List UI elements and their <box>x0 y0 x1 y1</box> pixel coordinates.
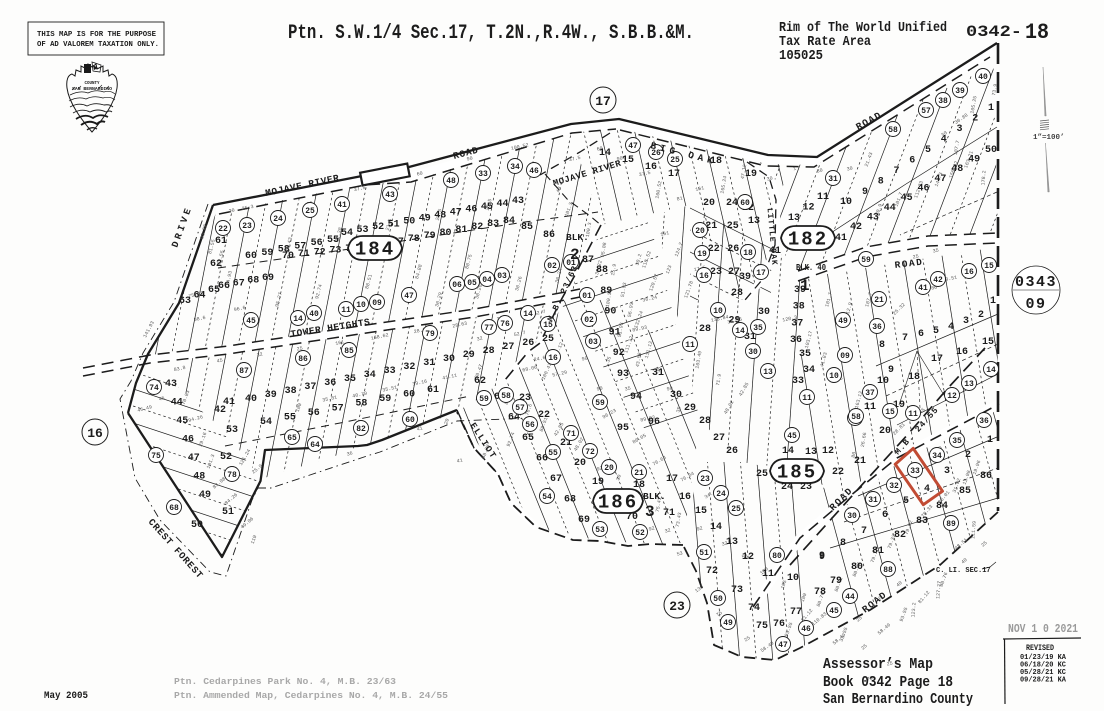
svg-text:35: 35 <box>753 324 763 333</box>
svg-text:23: 23 <box>669 599 685 614</box>
svg-text:20: 20 <box>604 464 614 473</box>
svg-text:15: 15 <box>982 337 994 348</box>
svg-text:53: 53 <box>356 225 368 236</box>
svg-text:3: 3 <box>956 124 962 135</box>
svg-text:12: 12 <box>947 392 957 401</box>
svg-text:92: 92 <box>613 348 625 359</box>
svg-text:8: 8 <box>878 177 884 188</box>
svg-text:2: 2 <box>978 310 984 321</box>
svg-text:50: 50 <box>403 216 415 227</box>
svg-text:09: 09 <box>840 352 850 361</box>
svg-text:45: 45 <box>246 317 256 326</box>
svg-text:09: 09 <box>372 299 382 308</box>
svg-text:May 2005: May 2005 <box>44 691 88 702</box>
svg-text:40: 40 <box>978 73 988 82</box>
svg-text:42: 42 <box>214 405 226 416</box>
svg-text:25: 25 <box>727 221 739 232</box>
svg-text:65: 65 <box>287 434 297 443</box>
svg-text:11: 11 <box>864 402 876 413</box>
svg-text:9: 9 <box>888 365 894 376</box>
svg-text:58: 58 <box>501 392 511 401</box>
svg-text:54: 54 <box>260 417 272 428</box>
svg-text:C. LI. SEC.17: C. LI. SEC.17 <box>936 567 991 575</box>
svg-text:34: 34 <box>364 370 376 381</box>
svg-text:COUNTY: COUNTY <box>84 82 100 86</box>
svg-text:76: 76 <box>773 619 785 630</box>
svg-text:51: 51 <box>222 507 234 518</box>
svg-text:37: 37 <box>791 318 803 329</box>
svg-text:49: 49 <box>838 317 848 326</box>
svg-text:3: 3 <box>645 503 655 521</box>
svg-text:83: 83 <box>916 516 928 527</box>
svg-text:22: 22 <box>218 225 228 234</box>
svg-text:46: 46 <box>182 435 194 446</box>
svg-text:32: 32 <box>889 482 899 491</box>
svg-text:42: 42 <box>850 222 862 233</box>
svg-text:1: 1 <box>990 296 996 307</box>
svg-text:34: 34 <box>932 452 942 461</box>
svg-text:87: 87 <box>239 367 249 376</box>
svg-text:1: 1 <box>988 103 994 114</box>
svg-text:72: 72 <box>706 566 718 577</box>
svg-text:81: 81 <box>455 225 467 236</box>
svg-text:11: 11 <box>817 192 829 203</box>
svg-text:Ptn. S.W.1/4 Sec.17, T.2N.,R.4: Ptn. S.W.1/4 Sec.17, T.2N.,R.4W., S.B.B.… <box>288 22 694 45</box>
svg-text:7: 7 <box>902 333 908 344</box>
svg-text:24: 24 <box>726 198 738 209</box>
svg-text:11: 11 <box>762 569 774 580</box>
svg-text:21: 21 <box>634 469 644 478</box>
svg-text:57: 57 <box>921 107 931 116</box>
svg-text:Ptn. Cedarpines Park No. 4, M.: Ptn. Cedarpines Park No. 4, M.B. 23/63 <box>174 677 396 687</box>
svg-text:55: 55 <box>284 412 296 423</box>
svg-text:35: 35 <box>952 437 962 446</box>
svg-text:Tax Rate Area: Tax Rate Area <box>779 35 871 50</box>
svg-text:45: 45 <box>176 416 188 427</box>
svg-text:18: 18 <box>743 249 753 258</box>
svg-text:9: 9 <box>819 552 825 563</box>
svg-text:38: 38 <box>285 386 297 397</box>
svg-text:3: 3 <box>944 466 950 477</box>
svg-text:52: 52 <box>220 452 232 463</box>
svg-text:37: 37 <box>865 389 875 398</box>
svg-text:30: 30 <box>748 348 758 357</box>
svg-text:28: 28 <box>699 324 711 335</box>
svg-text:02: 02 <box>584 316 594 325</box>
svg-text:60: 60 <box>740 199 750 208</box>
svg-text:19: 19 <box>592 477 604 488</box>
svg-text:81: 81 <box>872 546 884 557</box>
svg-text:20: 20 <box>695 227 705 236</box>
svg-text:30: 30 <box>847 512 857 521</box>
svg-text:78: 78 <box>227 471 237 480</box>
svg-text:27: 27 <box>713 433 725 444</box>
svg-text:44: 44 <box>496 199 508 210</box>
svg-text:17: 17 <box>595 94 611 109</box>
svg-text:03: 03 <box>497 272 507 281</box>
svg-text:46: 46 <box>917 184 929 195</box>
svg-text:33: 33 <box>478 170 488 179</box>
svg-text:77: 77 <box>790 607 802 618</box>
svg-text:69: 69 <box>262 273 274 284</box>
svg-text:52: 52 <box>635 529 645 538</box>
svg-text:85: 85 <box>959 486 971 497</box>
svg-text:5: 5 <box>925 145 931 156</box>
svg-text:182: 182 <box>788 229 828 251</box>
svg-text:04: 04 <box>482 276 492 285</box>
svg-text:14: 14 <box>710 522 722 533</box>
svg-text:70: 70 <box>282 251 294 262</box>
svg-text:80: 80 <box>851 562 863 573</box>
svg-text:44: 44 <box>171 398 183 409</box>
svg-text:61: 61 <box>427 385 439 396</box>
svg-text:2: 2 <box>965 450 971 461</box>
svg-text:84: 84 <box>936 501 948 512</box>
svg-text:87: 87 <box>582 255 594 266</box>
svg-text:26: 26 <box>522 338 534 349</box>
svg-text:14: 14 <box>735 327 745 336</box>
svg-text:31: 31 <box>423 358 435 369</box>
svg-text:02: 02 <box>547 262 557 271</box>
svg-text:49: 49 <box>419 214 431 225</box>
svg-text:4: 4 <box>948 322 954 333</box>
svg-text:1”=100’: 1”=100’ <box>1033 134 1065 142</box>
svg-text:8: 8 <box>840 538 846 549</box>
svg-text:14: 14 <box>782 446 794 457</box>
svg-text:79: 79 <box>830 576 842 587</box>
svg-text:13: 13 <box>763 368 773 377</box>
svg-text:95: 95 <box>617 423 629 434</box>
svg-text:2: 2 <box>570 246 580 264</box>
svg-text:4: 4 <box>924 484 930 495</box>
svg-text:6: 6 <box>882 510 888 521</box>
svg-text:56: 56 <box>525 421 535 430</box>
svg-text:57: 57 <box>332 403 344 414</box>
svg-text:71: 71 <box>566 430 576 439</box>
svg-text:06: 06 <box>452 281 462 290</box>
svg-text:26: 26 <box>726 446 738 457</box>
svg-text:80: 80 <box>772 552 782 561</box>
svg-text:36: 36 <box>872 323 882 332</box>
svg-text:91: 91 <box>609 327 621 338</box>
svg-text:15: 15 <box>885 408 895 417</box>
svg-text:16: 16 <box>964 268 974 277</box>
svg-text:68: 68 <box>564 495 576 506</box>
svg-text:THIS MAP IS FOR THE PURPOSE: THIS MAP IS FOR THE PURPOSE <box>37 31 156 39</box>
svg-text:46: 46 <box>801 625 811 634</box>
svg-text:96: 96 <box>648 417 660 428</box>
svg-text:90: 90 <box>581 355 588 362</box>
svg-text:11: 11 <box>908 410 918 419</box>
svg-text:84: 84 <box>503 216 515 227</box>
svg-text:11: 11 <box>341 306 351 315</box>
svg-text:68: 68 <box>169 504 179 513</box>
svg-text:10: 10 <box>713 307 723 316</box>
svg-text:14: 14 <box>599 148 611 159</box>
svg-text:10: 10 <box>829 372 839 381</box>
svg-text:76: 76 <box>500 320 510 329</box>
svg-text:35: 35 <box>799 349 811 360</box>
svg-text:37: 37 <box>304 382 316 393</box>
svg-text:8: 8 <box>879 340 885 351</box>
svg-text:77: 77 <box>484 324 494 333</box>
svg-text:41: 41 <box>835 233 847 244</box>
svg-text:20: 20 <box>228 207 235 214</box>
svg-text:53: 53 <box>226 425 238 436</box>
svg-text:23: 23 <box>242 222 252 231</box>
svg-text:60: 60 <box>403 390 415 401</box>
svg-text:22: 22 <box>538 410 550 421</box>
svg-text:16: 16 <box>699 272 709 281</box>
svg-text:18: 18 <box>908 372 920 383</box>
svg-text:48: 48 <box>951 164 963 175</box>
svg-text:59: 59 <box>861 256 871 265</box>
svg-text:89: 89 <box>600 286 612 297</box>
svg-text:74: 74 <box>149 384 159 393</box>
svg-text:22: 22 <box>832 467 844 478</box>
svg-text:49: 49 <box>968 155 980 166</box>
svg-text:20: 20 <box>703 198 715 209</box>
svg-text:9: 9 <box>862 187 868 198</box>
svg-text:39: 39 <box>739 272 751 283</box>
svg-text:12: 12 <box>742 552 754 563</box>
svg-text:14: 14 <box>293 315 303 324</box>
svg-text:41: 41 <box>456 457 463 464</box>
svg-text:13: 13 <box>964 380 974 389</box>
svg-text:26: 26 <box>727 244 739 255</box>
svg-text:32: 32 <box>403 362 415 373</box>
svg-text:29: 29 <box>684 403 696 414</box>
svg-text:81: 81 <box>676 195 683 202</box>
svg-text:86: 86 <box>543 230 555 241</box>
svg-text:47: 47 <box>628 142 638 151</box>
svg-text:62: 62 <box>210 259 222 270</box>
svg-text:25: 25 <box>305 207 315 216</box>
svg-text:50: 50 <box>713 595 723 604</box>
svg-text:47: 47 <box>188 453 200 464</box>
svg-text:45: 45 <box>829 607 839 616</box>
svg-text:88: 88 <box>883 566 893 575</box>
svg-text:71: 71 <box>298 249 310 260</box>
svg-text:13: 13 <box>726 537 738 548</box>
svg-text:56: 56 <box>308 408 320 419</box>
svg-text:80: 80 <box>439 228 451 239</box>
svg-text:34: 34 <box>510 163 520 172</box>
svg-text:94: 94 <box>630 392 642 403</box>
svg-text:6: 6 <box>909 156 915 167</box>
svg-text:71: 71 <box>663 508 675 519</box>
svg-text:51: 51 <box>699 549 709 558</box>
svg-text:20: 20 <box>574 458 586 469</box>
svg-text:47: 47 <box>450 208 462 219</box>
svg-text:15: 15 <box>622 155 634 166</box>
svg-text:10: 10 <box>877 376 889 387</box>
svg-text:Book 0342 Page 18: Book 0342 Page 18 <box>823 674 953 691</box>
svg-text:10: 10 <box>356 301 366 310</box>
svg-text:25: 25 <box>731 505 741 514</box>
svg-text:68: 68 <box>247 276 259 287</box>
svg-text:01: 01 <box>582 292 592 301</box>
svg-text:33: 33 <box>384 366 396 377</box>
svg-text:39: 39 <box>955 87 965 96</box>
svg-text:40: 40 <box>309 310 319 319</box>
svg-text:88: 88 <box>596 265 608 276</box>
svg-text:5: 5 <box>903 496 909 507</box>
svg-text:184: 184 <box>355 239 395 261</box>
svg-text:29: 29 <box>463 350 475 361</box>
svg-text:62: 62 <box>474 376 486 387</box>
svg-text:28: 28 <box>483 346 495 357</box>
svg-text:63: 63 <box>179 296 191 307</box>
svg-text:33: 33 <box>910 467 920 476</box>
svg-text:7: 7 <box>893 166 899 177</box>
svg-text:52: 52 <box>372 222 384 233</box>
svg-text:BLK.: BLK. <box>566 232 589 243</box>
svg-text:12: 12 <box>802 203 814 214</box>
svg-text:3: 3 <box>963 316 969 327</box>
svg-text:78: 78 <box>408 234 420 245</box>
svg-text:46: 46 <box>529 167 539 176</box>
svg-text:48: 48 <box>446 177 456 186</box>
svg-text:59: 59 <box>479 395 489 404</box>
svg-text:54: 54 <box>542 493 552 502</box>
svg-text:79: 79 <box>424 231 436 242</box>
svg-text:28: 28 <box>731 288 743 299</box>
svg-text:32: 32 <box>256 351 263 358</box>
svg-text:60: 60 <box>245 251 257 262</box>
svg-text:17: 17 <box>756 269 766 278</box>
svg-text:17: 17 <box>668 169 680 180</box>
svg-text:75: 75 <box>151 452 161 461</box>
svg-text:13: 13 <box>805 447 817 458</box>
svg-text:28: 28 <box>699 416 711 427</box>
svg-text:39: 39 <box>265 390 277 401</box>
svg-text:185: 185 <box>777 462 817 484</box>
svg-text:47: 47 <box>778 641 788 650</box>
svg-text:59: 59 <box>595 399 605 408</box>
svg-text:30: 30 <box>846 165 853 172</box>
svg-text:30: 30 <box>670 390 682 401</box>
svg-text:31: 31 <box>652 368 664 379</box>
svg-text:2: 2 <box>972 114 978 125</box>
svg-text:48: 48 <box>434 211 446 222</box>
svg-text:30: 30 <box>758 307 770 318</box>
svg-text:82: 82 <box>894 530 906 541</box>
svg-text:05: 05 <box>467 279 477 288</box>
svg-text:64: 64 <box>193 291 205 302</box>
svg-text:38: 38 <box>938 97 948 106</box>
svg-text:16: 16 <box>87 426 103 441</box>
svg-text:47: 47 <box>934 174 946 185</box>
svg-text:16: 16 <box>679 492 691 503</box>
svg-text:64: 64 <box>310 441 320 450</box>
svg-text:24: 24 <box>716 490 726 499</box>
svg-text:61: 61 <box>215 236 227 247</box>
svg-text:43: 43 <box>165 379 177 390</box>
svg-text:19: 19 <box>697 250 707 259</box>
svg-text:186: 186 <box>598 492 638 514</box>
svg-text:50: 50 <box>985 145 997 156</box>
svg-text:82: 82 <box>356 425 366 434</box>
svg-text:85: 85 <box>521 222 533 233</box>
svg-text:25: 25 <box>542 334 554 345</box>
svg-text:45: 45 <box>216 357 223 364</box>
svg-text:47: 47 <box>404 292 414 301</box>
svg-text:16: 16 <box>548 354 558 363</box>
svg-text:50: 50 <box>191 520 203 531</box>
svg-text:36: 36 <box>790 335 802 346</box>
svg-text:21: 21 <box>854 456 866 467</box>
svg-text:44: 44 <box>884 203 896 214</box>
svg-text:85: 85 <box>344 347 354 356</box>
svg-text:27: 27 <box>502 342 514 353</box>
svg-text:16: 16 <box>956 347 968 358</box>
svg-text:30: 30 <box>766 175 773 182</box>
svg-text:90: 90 <box>604 307 616 318</box>
svg-text:0342-: 0342- <box>966 23 1022 41</box>
svg-text:55: 55 <box>548 449 558 458</box>
svg-text:51: 51 <box>388 219 400 230</box>
svg-text:42: 42 <box>933 276 943 285</box>
svg-text:33: 33 <box>792 376 804 387</box>
svg-text:67: 67 <box>233 278 245 289</box>
svg-text:REVISED: REVISED <box>1026 644 1054 653</box>
svg-text:10: 10 <box>787 573 799 584</box>
svg-text:5: 5 <box>933 326 939 337</box>
svg-text:34: 34 <box>803 365 815 376</box>
svg-text:12: 12 <box>822 446 834 457</box>
svg-text:15: 15 <box>695 506 707 517</box>
svg-text:13: 13 <box>748 216 760 227</box>
svg-text:48: 48 <box>193 472 205 483</box>
svg-text:43: 43 <box>512 196 524 207</box>
svg-text:43: 43 <box>867 212 879 223</box>
svg-text:11: 11 <box>685 341 695 350</box>
svg-text:BLK.: BLK. <box>643 491 666 502</box>
svg-text:14: 14 <box>986 366 996 375</box>
svg-text:73: 73 <box>731 585 743 596</box>
svg-text:93: 93 <box>617 369 629 380</box>
svg-text:BLK. 40: BLK. 40 <box>796 262 826 273</box>
svg-text:4: 4 <box>941 135 947 146</box>
svg-text:58: 58 <box>888 126 898 135</box>
svg-text:78: 78 <box>814 587 826 598</box>
svg-text:44: 44 <box>845 593 855 602</box>
svg-text:17: 17 <box>931 354 943 365</box>
svg-text:72: 72 <box>585 448 595 457</box>
svg-text:31: 31 <box>828 175 838 184</box>
svg-text:59: 59 <box>261 248 273 259</box>
svg-text:0343: 0343 <box>1015 274 1057 291</box>
svg-text:43: 43 <box>385 191 395 200</box>
svg-text:10: 10 <box>840 197 852 208</box>
svg-text:17: 17 <box>666 474 678 485</box>
svg-text:03: 03 <box>588 338 598 347</box>
svg-text:66: 66 <box>218 281 230 292</box>
svg-text:19: 19 <box>745 169 757 180</box>
svg-text:30: 30 <box>443 354 455 365</box>
svg-text:NOV 1 0 2021: NOV 1 0 2021 <box>1008 623 1078 636</box>
svg-text:40: 40 <box>245 394 257 405</box>
svg-text:67: 67 <box>550 474 562 485</box>
svg-text:35: 35 <box>932 247 939 254</box>
svg-text:OF AD VALOREM TAXATION ONLY.: OF AD VALOREM TAXATION ONLY. <box>37 41 159 49</box>
svg-text:79: 79 <box>425 330 435 339</box>
svg-text:18: 18 <box>1025 20 1049 45</box>
svg-text:49: 49 <box>199 490 211 501</box>
svg-text:45: 45 <box>787 432 797 441</box>
svg-text:09/28/21 KA: 09/28/21 KA <box>1020 677 1066 685</box>
